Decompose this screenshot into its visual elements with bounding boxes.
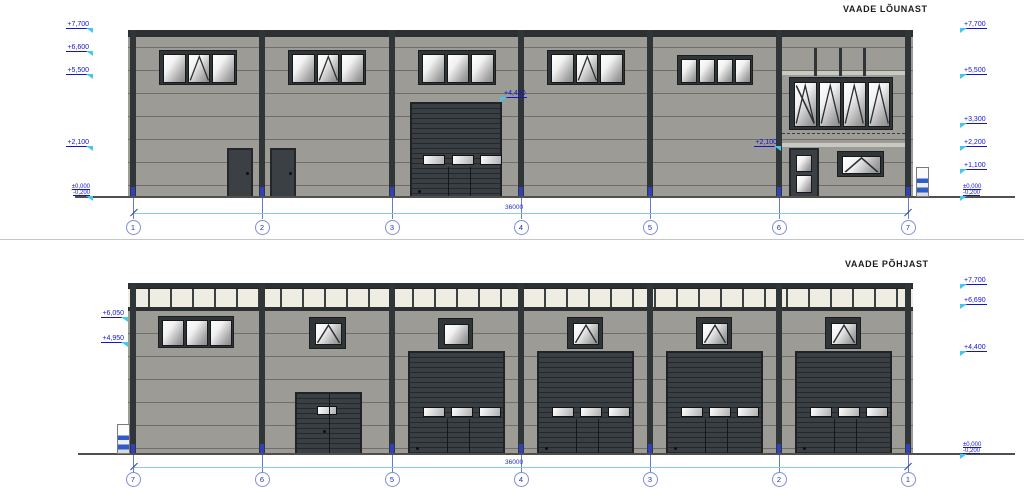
window — [677, 55, 753, 85]
door-window — [866, 407, 888, 417]
extension-line — [262, 198, 263, 219]
level-marker: +4,950 — [91, 335, 125, 343]
spot-flag-icon — [500, 97, 507, 102]
level-marker: +2,100 — [744, 139, 778, 147]
spot-flag-icon — [960, 284, 967, 289]
grid-column — [905, 30, 911, 198]
grid-bubble: 7 — [901, 220, 916, 235]
window — [309, 317, 346, 349]
spot-flag-icon — [86, 28, 93, 33]
sheet-divider — [0, 239, 1024, 240]
grid-number: 1 — [131, 223, 135, 232]
extension-line — [262, 455, 263, 473]
level-marker: +7,700 — [963, 21, 997, 29]
window-pane — [341, 54, 364, 83]
window — [288, 50, 366, 85]
extension-line — [779, 455, 780, 473]
opening-indicator-icon — [843, 157, 880, 173]
window — [567, 317, 603, 349]
grid-column — [776, 283, 782, 455]
window-pane — [573, 323, 599, 345]
mullion-stub — [863, 48, 866, 76]
personnel-door — [227, 148, 253, 198]
grid-number: 6 — [260, 475, 264, 484]
window — [789, 77, 893, 130]
extension-line — [392, 198, 393, 219]
opening-indicator-icon — [832, 324, 856, 344]
opening-indicator-icon — [577, 55, 598, 82]
window-pane — [600, 54, 623, 83]
door-window — [709, 407, 731, 417]
level-marker: ±0,000-0,200 — [963, 443, 997, 454]
window-pane — [210, 320, 232, 346]
grid-column — [647, 30, 653, 198]
window-pane — [681, 59, 697, 83]
door-seam — [329, 394, 330, 453]
window — [159, 50, 237, 85]
extension-line — [908, 198, 909, 219]
grid-number: 1 — [906, 475, 910, 484]
wicket-seam — [576, 419, 577, 453]
grid-bubble: 2 — [255, 220, 270, 235]
spot-flag-icon — [960, 169, 967, 174]
opening-indicator-icon — [820, 83, 841, 126]
door-handle — [418, 190, 421, 193]
dimension-line — [133, 467, 908, 468]
grid-bubble: 2 — [772, 472, 787, 487]
door-window — [810, 407, 832, 417]
window — [158, 316, 234, 348]
extension-line — [133, 198, 134, 219]
door-glass — [796, 155, 812, 172]
wicket-seam — [448, 167, 449, 196]
wicket-seam — [727, 419, 728, 453]
level-marker: +7,700 — [56, 21, 90, 29]
sectional-door — [408, 351, 505, 455]
spot-flag-icon — [960, 74, 967, 79]
wicket-seam — [470, 167, 471, 196]
spot-flag-icon — [960, 146, 967, 151]
grid-column — [130, 30, 136, 198]
window-pane — [843, 82, 866, 127]
door-window — [580, 407, 602, 417]
grid-number: 7 — [906, 223, 910, 232]
level-value: -0,200 — [963, 449, 997, 455]
window — [825, 317, 861, 349]
trim-band — [782, 143, 905, 147]
window-pane — [186, 320, 208, 346]
elevations-layer: 360001234567+7,700+6,600+5,500+2,100±0,0… — [0, 0, 1024, 489]
extension-line — [650, 198, 651, 219]
window — [438, 318, 473, 349]
door-window — [479, 407, 501, 417]
grid-bubble: 5 — [643, 220, 658, 235]
mullion-stub — [814, 48, 817, 76]
spot-flag-icon — [960, 351, 967, 356]
grid-column — [130, 283, 136, 455]
grid-column — [389, 283, 395, 455]
grid-column — [647, 283, 653, 455]
grid-column — [389, 30, 395, 198]
spot-flag-icon — [86, 146, 93, 151]
sectional-door — [666, 351, 763, 455]
opening-indicator-icon — [574, 324, 598, 344]
dimension-text: 36000 — [505, 204, 523, 211]
window — [696, 317, 732, 349]
spot-flag-icon — [86, 74, 93, 79]
extension-line — [392, 455, 393, 473]
door-window — [552, 407, 574, 417]
ground-line — [78, 453, 1015, 455]
level-marker: ±0,000-0,200 — [963, 185, 997, 196]
opening-indicator-icon — [844, 83, 865, 126]
mullion-stub — [839, 48, 842, 76]
door-handle — [246, 172, 249, 175]
grid-number: 5 — [390, 475, 394, 484]
grid-number: 2 — [260, 223, 264, 232]
bollard — [916, 167, 929, 197]
grid-bubble: 4 — [514, 472, 529, 487]
level-marker: ±0,000-0,200 — [56, 185, 90, 196]
extension-line — [650, 455, 651, 473]
grid-bubble: 5 — [385, 472, 400, 487]
door-handle — [289, 172, 292, 175]
window-pane — [551, 54, 574, 83]
window — [837, 151, 884, 177]
extension-line — [779, 198, 780, 219]
door-handle — [323, 430, 326, 433]
grid-number: 2 — [777, 475, 781, 484]
door-handle — [416, 447, 419, 450]
grid-bubble: 6 — [772, 220, 787, 235]
grid-bubble: 1 — [126, 220, 141, 235]
sectional-door — [795, 351, 892, 455]
window-pane — [447, 54, 470, 83]
window-pane — [188, 54, 211, 83]
spot-flag-icon — [960, 28, 967, 33]
grid-number: 3 — [390, 223, 394, 232]
grid-column — [776, 30, 782, 198]
window-pane — [162, 320, 184, 346]
door-window — [737, 407, 759, 417]
level-marker: +6,050 — [91, 310, 125, 318]
door-window — [480, 155, 502, 165]
window-pane — [212, 54, 235, 83]
spot-flag-icon — [960, 196, 967, 201]
level-marker: +6,600 — [56, 44, 90, 52]
opening-indicator-icon — [189, 55, 210, 82]
spot-flag-icon — [86, 51, 93, 56]
door-handle — [545, 447, 548, 450]
door-window — [451, 407, 473, 417]
window-pane — [717, 59, 733, 83]
window-pane — [842, 156, 881, 174]
window-pane — [444, 324, 469, 345]
dashed-line — [782, 133, 905, 134]
level-marker: +6,690 — [963, 297, 997, 305]
level-marker: +7,700 — [963, 277, 997, 285]
spot-flag-icon — [960, 123, 967, 128]
opening-indicator-icon — [795, 83, 816, 126]
opening-indicator-icon — [318, 55, 339, 82]
dimension-line — [133, 213, 908, 214]
spot-flag-icon — [774, 146, 781, 151]
drawing-sheet: VAADE LÕUNAST VAADE PÕHJAST 360001234567… — [0, 0, 1024, 489]
level-marker: +4,400 — [963, 344, 997, 352]
grid-bubble: 3 — [385, 220, 400, 235]
window-pane — [163, 54, 186, 83]
spot-flag-icon — [121, 317, 128, 322]
window — [418, 50, 496, 85]
roller-door — [295, 392, 362, 455]
window — [547, 50, 625, 85]
level-marker: +2,200 — [963, 139, 997, 147]
grid-column — [259, 30, 265, 198]
ground-line — [75, 196, 1015, 198]
wicket-seam — [598, 419, 599, 453]
window-pane — [317, 54, 340, 83]
level-value: -0,200 — [56, 191, 90, 197]
grid-number: 4 — [519, 475, 523, 484]
grid-column — [259, 283, 265, 455]
grid-bubble: 4 — [514, 220, 529, 235]
grid-column — [518, 30, 524, 198]
door-window — [838, 407, 860, 417]
window-pane — [315, 323, 342, 345]
grid-bubble: 1 — [901, 472, 916, 487]
window-pane — [576, 54, 599, 83]
level-value: -0,200 — [963, 191, 997, 197]
door-window — [452, 155, 474, 165]
door-window — [423, 155, 445, 165]
opening-indicator-icon — [869, 83, 890, 126]
spot-flag-icon — [960, 454, 967, 459]
personnel-door — [270, 148, 296, 198]
grid-number: 6 — [777, 223, 781, 232]
door-window — [317, 406, 337, 415]
level-marker: +1,100 — [963, 162, 997, 170]
wicket-seam — [469, 419, 470, 453]
dimension-text: 36000 — [505, 459, 523, 466]
wicket-seam — [856, 419, 857, 453]
window-pane — [702, 323, 728, 345]
window-pane — [471, 54, 494, 83]
window-pane — [819, 82, 842, 127]
wicket-seam — [705, 419, 706, 453]
window-pane — [699, 59, 715, 83]
level-marker: +2,100 — [56, 139, 90, 147]
grid-number: 7 — [131, 475, 135, 484]
window-pane — [292, 54, 315, 83]
grid-number: 3 — [648, 475, 652, 484]
window-pane — [735, 59, 751, 83]
door-handle — [674, 447, 677, 450]
level-marker: +5,500 — [963, 67, 997, 75]
level-marker: +3,300 — [963, 116, 997, 124]
spot-flag-icon — [86, 196, 93, 201]
door-window — [681, 407, 703, 417]
window-pane — [831, 323, 857, 345]
level-marker: +4,400 — [503, 90, 537, 98]
grid-number: 4 — [519, 223, 523, 232]
door-window — [608, 407, 630, 417]
door-handle — [803, 447, 806, 450]
opening-indicator-icon — [703, 324, 727, 344]
grid-column — [518, 283, 524, 455]
sectional-door — [537, 351, 634, 455]
window-pane — [422, 54, 445, 83]
sectional-door — [410, 102, 502, 198]
door-glass — [796, 175, 812, 193]
opening-indicator-icon — [316, 324, 341, 344]
spot-flag-icon — [121, 342, 128, 347]
bollard — [117, 424, 130, 454]
trim-band — [782, 71, 905, 75]
wicket-seam — [447, 419, 448, 453]
door-window — [423, 407, 445, 417]
grid-column — [905, 283, 911, 455]
window-pane — [868, 82, 891, 127]
window-pane — [794, 82, 817, 127]
level-marker: +5,500 — [56, 67, 90, 75]
wicket-seam — [834, 419, 835, 453]
grid-bubble: 7 — [126, 472, 141, 487]
glazed-door — [789, 148, 819, 198]
grid-number: 5 — [648, 223, 652, 232]
grid-bubble: 3 — [643, 472, 658, 487]
spot-flag-icon — [960, 304, 967, 309]
grid-bubble: 6 — [255, 472, 270, 487]
